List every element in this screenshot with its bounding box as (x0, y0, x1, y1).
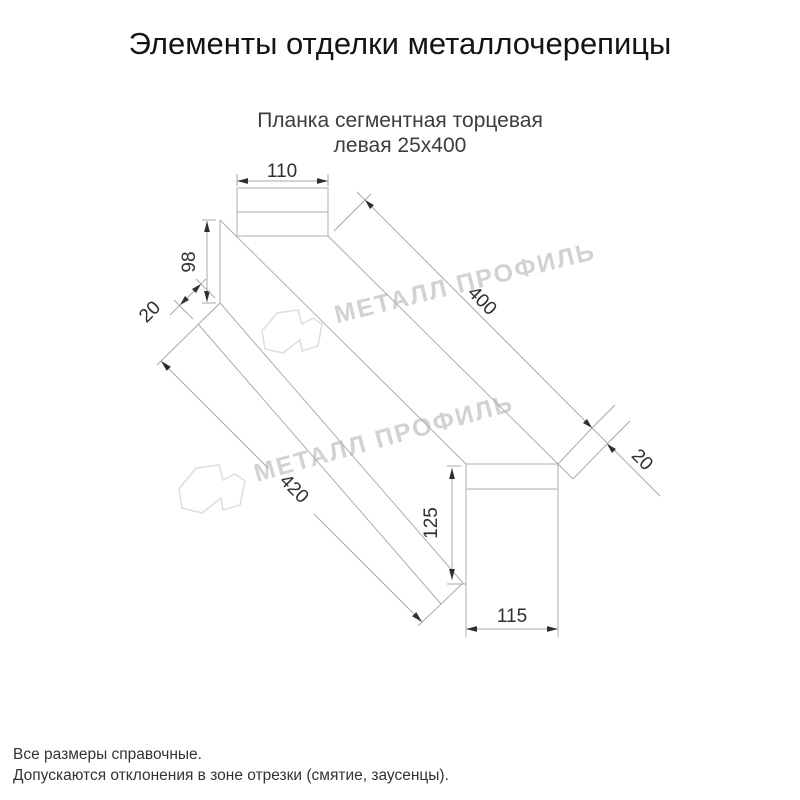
dim-420-ext-far (418, 583, 463, 626)
dim-420-line-2 (314, 514, 422, 622)
dim-label-20-far: 20 (627, 445, 657, 475)
metall-profil-logo-icon (262, 310, 322, 353)
dim-label-115: 115 (497, 606, 527, 627)
footer-note-2: Допускаются отклонения в зоне отрезки (с… (13, 767, 449, 785)
watermark-text-upper: МЕТАЛЛ ПРОФИЛЬ (332, 237, 599, 329)
dim-label-110: 110 (267, 161, 297, 182)
dim-420-line-1 (161, 361, 268, 468)
far-hem-near-cap (558, 464, 573, 479)
far-hem-edge-2 (573, 444, 607, 479)
footer-note-1: Все размеры справочные. (13, 746, 202, 764)
dim-label-98: 98 (179, 251, 200, 272)
dim-400-ext-near (334, 194, 371, 231)
dim-20n-ext-1 (196, 279, 215, 298)
dim-20f-ext-2 (607, 421, 630, 444)
dim-20f-arrow (607, 444, 616, 453)
dim-label-125: 125 (421, 507, 442, 539)
far-hem-edge-1 (558, 428, 592, 464)
top-flange-left-edge (220, 220, 466, 464)
bottom-flange-outer-edge (198, 324, 441, 604)
dimension-125: 125 (421, 466, 466, 584)
dim-20f-ext-1 (592, 405, 615, 428)
watermark-upper: МЕТАЛЛ ПРОФИЛЬ (262, 237, 599, 353)
dimension-98: 98 (179, 220, 216, 303)
dimension-115: 115 (466, 606, 558, 629)
product-drawing-page: Элементы отделки металлочерепицы Планка … (0, 0, 800, 800)
dimension-20-far: 20 (592, 405, 657, 475)
dimension-110: 110 (237, 161, 328, 186)
dim-420-ext-near (157, 303, 220, 365)
technical-drawing: МЕТАЛЛ ПРОФИЛЬ МЕТАЛЛ ПРОФИЛЬ (0, 0, 800, 800)
dim-label-20-near: 20 (135, 297, 165, 327)
metall-profil-logo-icon (179, 465, 245, 513)
